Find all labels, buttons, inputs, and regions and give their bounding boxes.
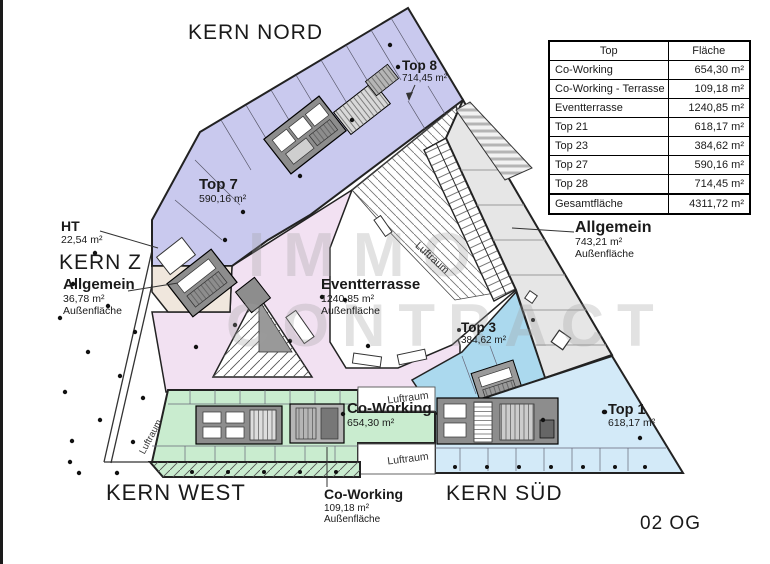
coworking-terrace-band <box>150 462 360 477</box>
room-area: 1240,85 m² <box>321 294 420 306</box>
room-name: Top 8 <box>402 58 447 73</box>
room-note: Außenfläche <box>575 249 651 261</box>
room-name: Top 1 <box>608 402 655 418</box>
table-cell-label: Top 28 <box>549 175 668 195</box>
room-area: 384,62 m² <box>461 335 506 346</box>
table-row: Co-Working 654,30 m² <box>549 61 750 80</box>
label-allgemein-ost: Allgemein 743,21 m² Außenfläche <box>575 219 651 260</box>
room-area: 36,78 m² <box>63 294 135 306</box>
table-cell-label: Top 23 <box>549 137 668 156</box>
table-header-row: Top Fläche <box>549 41 750 61</box>
table-cell-label: Eventterrasse <box>549 99 668 118</box>
room-note: Außenfläche <box>324 514 403 525</box>
room-area: 22,54 m² <box>61 235 102 247</box>
table-cell-value: 654,30 m² <box>668 61 750 80</box>
table-total-row: Gesamtfläche 4311,72 m² <box>549 194 750 214</box>
table-total-label: Gesamtfläche <box>549 194 668 214</box>
room-area: 743,21 m² <box>575 237 651 249</box>
room-note: Außenfläche <box>321 306 420 318</box>
kern-sued-label: KERN SÜD <box>446 482 563 506</box>
table-cell-label: Co-Working <box>549 61 668 80</box>
room-name: HT <box>61 219 102 235</box>
table-header-flaeche: Fläche <box>668 41 750 61</box>
table-total-value: 4311,72 m² <box>668 194 750 214</box>
table-row: Top 21 618,17 m² <box>549 118 750 137</box>
label-top7: Top 7 590,16 m² <box>199 177 246 206</box>
table-cell-value: 618,17 m² <box>668 118 750 137</box>
table-cell-label: Top 27 <box>549 156 668 175</box>
floor-indicator: 02 OG <box>640 513 701 535</box>
kern-sued-core <box>437 398 558 444</box>
table-cell-value: 590,16 m² <box>668 156 750 175</box>
label-top3: Top 3 384,62 m² <box>461 320 506 346</box>
room-name: Allgemein <box>575 219 651 237</box>
table-cell-label: Top 21 <box>549 118 668 137</box>
table-row: Eventterrasse 1240,85 m² <box>549 99 750 118</box>
floorplan-page: IMMO CONTRACT KERN NORD KERN Z KERN WEST… <box>0 0 770 564</box>
room-area: 109,18 m² <box>324 503 403 514</box>
label-coworking-terrasse: Co-Working 109,18 m² Außenfläche <box>324 487 403 525</box>
room-name: Top 3 <box>461 320 506 335</box>
table-row: Co-Working - Terrasse 109,18 m² <box>549 80 750 99</box>
label-eventterrasse: Eventterrasse 1240,85 m² Außenfläche <box>321 277 420 317</box>
room-name: Top 7 <box>199 177 246 194</box>
room-name: Co-Working <box>324 487 403 503</box>
room-area: 654,30 m² <box>347 418 432 430</box>
table-row: Top 23 384,62 m² <box>549 137 750 156</box>
room-area: 618,17 m² <box>608 418 655 430</box>
label-allgemein-west: Allgemein 36,78 m² Außenfläche <box>63 277 135 317</box>
table-cell-value: 109,18 m² <box>668 80 750 99</box>
table-row: Top 27 590,16 m² <box>549 156 750 175</box>
kern-nord-label: KERN NORD <box>188 21 323 45</box>
table-cell-value: 1240,85 m² <box>668 99 750 118</box>
table-cell-value: 714,45 m² <box>668 175 750 195</box>
room-name: Eventterrasse <box>321 277 420 294</box>
coworking-core <box>196 404 344 444</box>
kern-z-label: KERN Z <box>59 251 142 275</box>
room-note: Außenfläche <box>63 306 135 318</box>
area-table: Top Fläche Co-Working 654,30 m² Co-Worki… <box>548 40 749 215</box>
area-table-grid: Top Fläche Co-Working 654,30 m² Co-Worki… <box>548 40 751 215</box>
table-cell-label: Co-Working - Terrasse <box>549 80 668 99</box>
kern-west-label: KERN WEST <box>106 480 246 506</box>
table-row: Top 28 714,45 m² <box>549 175 750 195</box>
label-ht: HT 22,54 m² <box>61 219 102 246</box>
room-name: Allgemein <box>63 277 135 294</box>
room-area: 714,45 m² <box>402 73 447 84</box>
label-top1: Top 1 618,17 m² <box>608 402 655 430</box>
table-cell-value: 384,62 m² <box>668 137 750 156</box>
room-area: 590,16 m² <box>199 194 246 206</box>
label-top8: Top 8 714,45 m² <box>402 58 447 84</box>
table-header-top: Top <box>549 41 668 61</box>
